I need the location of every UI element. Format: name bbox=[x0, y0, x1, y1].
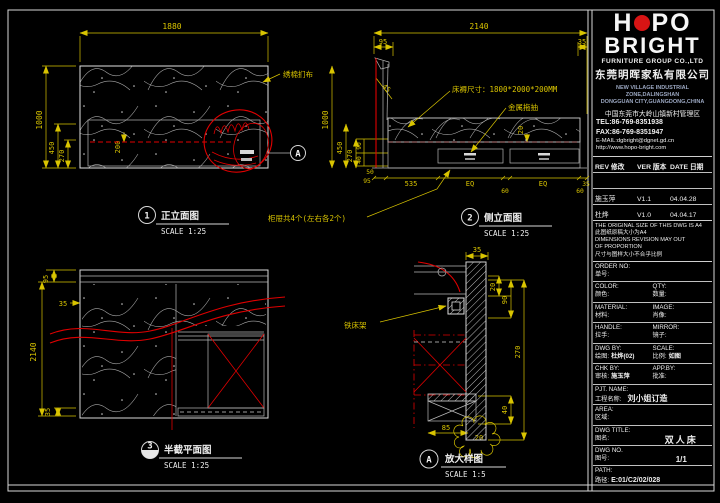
dim-side-450: 450 bbox=[336, 142, 344, 155]
mattress-corner-arc bbox=[418, 262, 460, 292]
dim-front-450: 450 bbox=[48, 142, 56, 155]
dim-detail-90: 90 bbox=[501, 296, 509, 304]
plan-title-text: 半截平面图 bbox=[164, 444, 212, 456]
detail-title-text: 放大样图 bbox=[444, 453, 483, 465]
dim-side-95b: 95 bbox=[363, 178, 371, 185]
side-elevation-drawing: 2140 95 35 45 1000 450 270 90 40 50 95 5… bbox=[321, 22, 590, 238]
field-dwgby-scale: DWG BY:SCALE: 绘图:杜烨(02) 比例:如图 bbox=[593, 344, 712, 364]
iron-frame-label: 铁床架 bbox=[344, 320, 367, 330]
dim-plan-95: 95 bbox=[42, 275, 50, 283]
field-handle-mirror: HANDLE:MIRROR: 拉手:镜子: bbox=[593, 323, 712, 343]
side-title-scale: SCALE 1:25 bbox=[484, 229, 529, 238]
field-order-no: ORDER NO: 单号: bbox=[593, 262, 712, 282]
front-title-scale: SCALE 1:25 bbox=[161, 227, 206, 236]
dim-side-eq1: EQ bbox=[466, 180, 474, 188]
plan-title-number: 3 bbox=[147, 442, 152, 452]
dim-plan-35a: 35 bbox=[59, 300, 67, 308]
dim-side-40: 40 bbox=[356, 156, 363, 164]
front-headboard bbox=[80, 66, 268, 168]
drawer-handle-front bbox=[240, 150, 254, 154]
drawer-handle-front-2 bbox=[241, 158, 252, 161]
dim-side-45: 45 bbox=[380, 83, 392, 95]
upholstery-leader: 绣棉扪布 bbox=[263, 69, 313, 82]
drawer-handle-2 bbox=[538, 153, 550, 156]
logo-text-bright: BRIGHT bbox=[594, 36, 711, 57]
front-title-text: 正立面图 bbox=[161, 210, 199, 222]
company-header: HPO BRIGHT FURNITURE GROUP CO.,LTD 东莞明晖家… bbox=[593, 10, 712, 157]
company-fax: FAX:86-769-8351947 bbox=[594, 129, 711, 138]
plan-title-scale: SCALE 1:25 bbox=[164, 461, 209, 470]
plan-title: 3 半截平面图 SCALE 1:25 bbox=[142, 442, 243, 471]
side-bed-structure bbox=[372, 58, 587, 168]
company-address-cn: 中国东莞市大岭山镇新村管理区 bbox=[594, 108, 711, 118]
dim-side-95: 95 bbox=[379, 38, 387, 46]
metal-slides-label: 金属拖抽 bbox=[508, 102, 538, 112]
dim-front-width: 1880 bbox=[162, 22, 181, 31]
enlarged-detail-drawing: 35 20 90 270 40 85 20 bbox=[344, 246, 524, 479]
field-project-name: PJT. NAME: 工程名称:刘小姐订造 bbox=[593, 385, 712, 405]
dim-side-eq2: EQ bbox=[539, 180, 547, 188]
field-material-image: MATERIAL:IMAGE: 材料:肖像: bbox=[593, 303, 712, 323]
detail-title-letter: A bbox=[426, 456, 432, 466]
title-block-fields: ORDER NO: 单号: COLOR:QTY: 颜色:数量: MATERIAL… bbox=[593, 262, 712, 486]
dim-side-270: 270 bbox=[346, 150, 354, 163]
front-title-number: 1 bbox=[144, 212, 149, 222]
revision-row: 杜烨 V1.0 04.04.17 bbox=[593, 205, 712, 220]
dim-side-60b: 60 bbox=[576, 188, 584, 195]
dim-detail-270: 270 bbox=[514, 346, 522, 359]
side-drawer-1 bbox=[438, 149, 503, 163]
logo-red-dot-icon bbox=[634, 15, 650, 31]
revision-header-row: REV 修改 VER 版本 DATE 日期 bbox=[593, 157, 712, 173]
drawer-note-label: 柜屉共4个(左右各2个) bbox=[268, 213, 346, 223]
title-block: HPO BRIGHT FURNITURE GROUP CO.,LTD 东莞明晖家… bbox=[593, 10, 712, 486]
dim-front-270: 270 bbox=[58, 150, 66, 163]
company-website: http://www.hopo-bright.com bbox=[594, 145, 711, 153]
dim-side-height: 1000 bbox=[321, 110, 330, 129]
sheet-notes: THE ORIGINAL SIZE OF THIS DWG IS A4 此图纸原… bbox=[593, 221, 712, 262]
dim-detail-40: 40 bbox=[501, 406, 509, 414]
company-subtitle: FURNITURE GROUP CO.,LTD bbox=[594, 58, 711, 65]
dim-side-60a: 60 bbox=[501, 188, 509, 195]
dim-side-90: 90 bbox=[356, 142, 363, 150]
dim-detail-20: 20 bbox=[489, 283, 497, 291]
field-color-qty: COLOR:QTY: 颜色:数量: bbox=[593, 282, 712, 302]
company-address-en: NEW VILLAGE INDUSTRIAL ZONE,DALINGSHAN D… bbox=[594, 85, 711, 106]
upholstery-label: 绣棉扪布 bbox=[283, 69, 313, 79]
detail-title: A 放大样图 SCALE 1:5 bbox=[420, 450, 506, 479]
side-drawer-2 bbox=[510, 149, 579, 163]
dim-side-35: 35 bbox=[578, 38, 586, 46]
dim-plan-35b: 35 bbox=[44, 408, 52, 416]
dim-front-height: 1000 bbox=[35, 110, 44, 129]
field-path: PATH: 路径:E:01/C2/02/028 bbox=[593, 466, 712, 485]
dim-side-50: 50 bbox=[366, 169, 374, 176]
detail-title-scale: SCALE 1:5 bbox=[445, 470, 486, 479]
field-area: AREA: 区域: bbox=[593, 405, 712, 425]
field-dwg-no: DWG NO. 图号:1/1 bbox=[593, 446, 712, 466]
mattress-size-label: 床褥尺寸：1800*2000*200MM bbox=[452, 84, 558, 94]
revision-row bbox=[593, 173, 712, 189]
field-chk-app: CHK BY:APP.BY: 审核:施玉萍 批准: bbox=[593, 364, 712, 384]
dim-plan-2140: 2140 bbox=[29, 342, 38, 361]
iron-frame-leader: 铁床架 bbox=[344, 306, 446, 330]
plan-dim-lines bbox=[38, 270, 80, 416]
dim-detail-35: 35 bbox=[473, 246, 481, 254]
field-dwg-title: DWG TITLE: 图名:双人床 bbox=[593, 426, 712, 446]
side-title-number: 2 bbox=[467, 214, 472, 224]
front-title: 1 正立面图 SCALE 1:25 bbox=[139, 207, 230, 237]
drawer-handle-1 bbox=[464, 153, 476, 156]
company-email: E-MAIL:dgbright@dgnet.gd.cn bbox=[594, 138, 711, 146]
detail-structure bbox=[414, 262, 500, 458]
cad-drawing-sheet: 1880 1000 450 270 200 A 绣棉扪布 bbox=[0, 0, 720, 503]
dim-side-width: 2140 bbox=[469, 22, 488, 31]
detail-callout-letter: A bbox=[295, 150, 301, 160]
plan-structure bbox=[50, 270, 285, 430]
dim-side-535: 535 bbox=[405, 180, 418, 188]
half-plan-drawing: 95 35 2140 35 3 半截平面图 bbox=[29, 270, 285, 470]
company-tel: TEL:86-769-8351938 bbox=[594, 119, 711, 128]
detail-callout-a: A bbox=[268, 146, 306, 161]
revision-row: 施玉萍 V1.1 04.04.28 bbox=[593, 189, 712, 205]
dim-detail-85: 85 bbox=[442, 424, 450, 432]
side-title: 2 侧立面图 SCALE 1:25 bbox=[462, 209, 553, 239]
side-title-text: 侧立面图 bbox=[484, 212, 522, 224]
side-dim-lines bbox=[332, 33, 589, 180]
dim-side-35b: 35 bbox=[582, 181, 590, 188]
company-name-cn: 东莞明晖家私有限公司 bbox=[594, 67, 711, 82]
revision-table: REV 修改 VER 版本 DATE 日期 施玉萍 V1.1 04.04.28 … bbox=[593, 157, 712, 221]
